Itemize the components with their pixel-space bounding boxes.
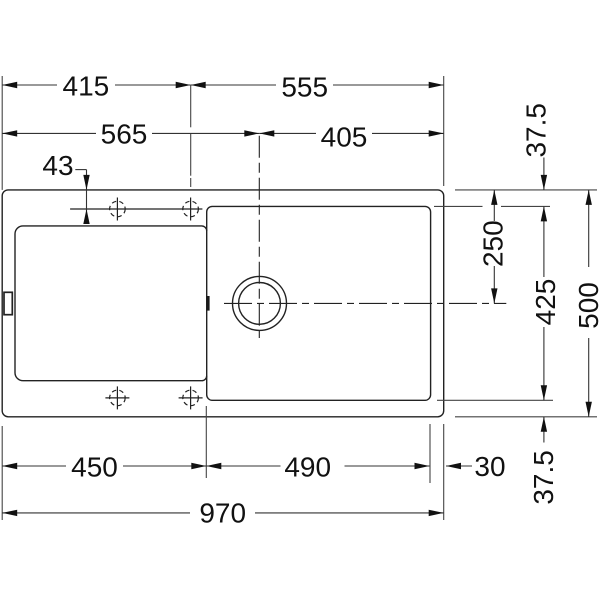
- svg-text:415: 415: [63, 71, 110, 102]
- svg-text:405: 405: [321, 122, 368, 153]
- svg-text:425: 425: [530, 279, 561, 326]
- svg-text:970: 970: [199, 497, 246, 528]
- svg-text:490: 490: [284, 451, 331, 482]
- svg-text:450: 450: [71, 451, 118, 482]
- svg-text:43: 43: [42, 150, 73, 181]
- svg-text:30: 30: [474, 451, 505, 482]
- svg-text:37.5: 37.5: [521, 103, 552, 158]
- svg-text:250: 250: [478, 220, 509, 267]
- svg-text:565: 565: [101, 118, 148, 149]
- svg-text:37.5: 37.5: [528, 450, 559, 505]
- svg-text:500: 500: [573, 282, 600, 329]
- svg-text:555: 555: [281, 72, 328, 103]
